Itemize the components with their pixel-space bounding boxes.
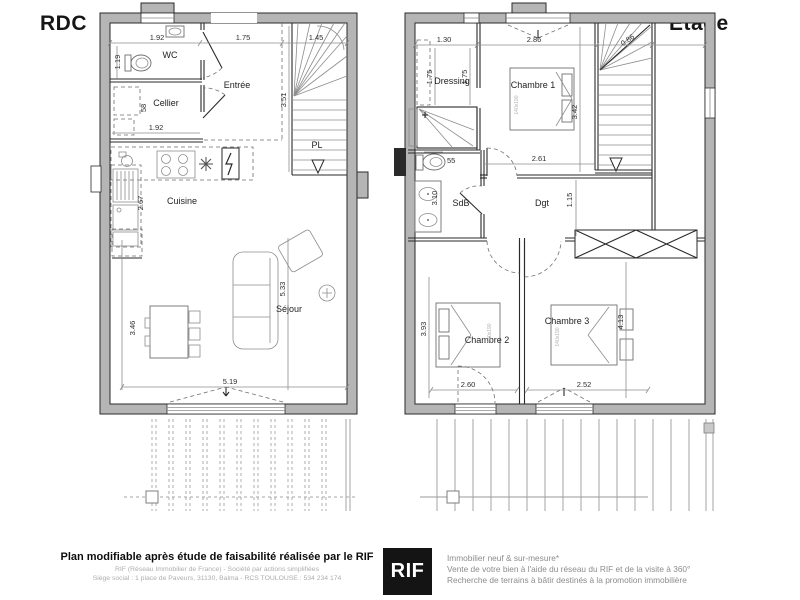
armchair	[277, 229, 323, 273]
dim-cellier-side: 58	[139, 104, 148, 112]
etage-terrace-rafters	[420, 419, 714, 511]
dim-ch3-side: 4.13	[616, 315, 625, 330]
room-label-wc: WC	[163, 50, 178, 60]
front-door-opening	[211, 13, 257, 23]
dim-dgt-width: 2.61	[532, 154, 547, 163]
dim-ch2-bottom: 2.60	[461, 380, 476, 389]
dim-cellier-width: 1.92	[149, 123, 164, 132]
dim-sdb-side: 3.10	[430, 191, 439, 206]
rif-logo: RIF	[383, 548, 432, 595]
dim-dressing1: 1.75	[425, 70, 434, 85]
room-label-sdb: SdB	[452, 198, 469, 208]
chimney-block	[141, 3, 174, 13]
rdc-floor-plan: 1.92 1.75 1.45 1.19 1.92 58 3.51 2.67 3.…	[91, 3, 368, 511]
room-label-chambre1: Chambre 1	[511, 80, 556, 90]
dining-table	[150, 306, 188, 358]
stair-direction-arrow	[610, 158, 622, 171]
room-label-chambre3: Chambre 3	[545, 316, 590, 326]
dim-kitchen-side: 2.67	[136, 196, 145, 211]
service-line-1: Immobilier neuf & sur-mesure*	[447, 553, 757, 564]
room-label-entree: Entrée	[224, 80, 251, 90]
living-room-furniture	[112, 229, 335, 358]
etage-floor-plan: 1.30 2.86 0.86 1.75 1.75 3.42 55 3.10 2.…	[394, 3, 715, 511]
dim-ch2-side: 3.93	[419, 322, 428, 337]
room-label-dressing: Dressing	[434, 76, 470, 86]
rdc-terrace-decking	[124, 419, 358, 511]
bed2-size-label: 140x190	[487, 323, 493, 342]
floor-plan-page: RDC Etage	[0, 0, 800, 600]
bay-window	[167, 404, 285, 414]
dim-toilet-width: 55	[447, 156, 455, 165]
room-label-dgt: Dgt	[535, 198, 550, 208]
dim-etage-top1: 1.30	[437, 35, 452, 44]
room-label-sejour: Séjour	[276, 304, 302, 314]
company-line1: RIF (Réseau Immobilier de France) - Soci…	[60, 566, 374, 575]
footer-disclaimer-block: Plan modifiable après étude de faisabili…	[60, 551, 374, 583]
rdc-staircase	[292, 23, 347, 175]
ch2-window	[455, 404, 496, 414]
cellier-storage	[114, 87, 140, 115]
service-line-3: Recherche de terrains à bâtir destinés à…	[447, 575, 757, 586]
service-line-2: Vente de votre bien à l'aide du réseau d…	[447, 564, 757, 575]
oven	[113, 205, 138, 230]
etage-staircase	[595, 23, 655, 232]
sofa	[233, 252, 278, 349]
chimney-block	[512, 3, 546, 13]
dim-rdc-top3: 1.45	[309, 33, 324, 42]
dim-stair-side: 3.51	[279, 93, 288, 108]
bed3-size-label: 140x190	[555, 327, 561, 346]
room-label-cuisine: Cuisine	[167, 196, 197, 206]
room-label-pl: PL	[311, 140, 322, 150]
dim-sejour-left: 3.46	[128, 321, 137, 336]
dim-etage-top2: 2.86	[527, 35, 542, 44]
footer-services-block: Immobilier neuf & sur-mesure* Vente de v…	[447, 553, 757, 585]
dim-wc-side: 1.19	[113, 55, 122, 70]
cellier-door-leaf	[203, 95, 225, 118]
ch3-window	[536, 404, 593, 414]
wc-door-leaf	[203, 32, 222, 68]
dim-rdc-top2: 1.75	[236, 33, 251, 42]
dim-ch1-side: 3.42	[570, 105, 579, 120]
dim-ch3-bottom: 2.52	[577, 380, 592, 389]
bed1-size-label: 140x190	[514, 95, 520, 114]
rif-logo-text: RIF	[391, 560, 425, 583]
floor-plans-drawing: 1.92 1.75 1.45 1.19 1.92 58 3.51 2.67 3.…	[0, 0, 800, 545]
linen-closet	[575, 230, 697, 258]
double-vanity	[415, 181, 441, 232]
bedroom3-bed	[551, 305, 633, 365]
company-line2: Siège social : 1 place de Paveurs, 31130…	[60, 575, 374, 584]
dim-dgt-side: 1.15	[565, 193, 574, 208]
flue-block	[394, 148, 406, 176]
toilet-tank	[125, 55, 131, 71]
shower	[409, 107, 477, 148]
extractor-symbol	[199, 157, 213, 171]
dim-sejour-right: 5.33	[278, 282, 287, 297]
room-label-cellier: Cellier	[153, 98, 179, 108]
dim-sejour-bottom: 5.19	[223, 377, 238, 386]
stair-direction-arrow	[312, 160, 324, 173]
disclaimer-title: Plan modifiable après étude de faisabili…	[60, 551, 374, 563]
toilet-tank	[416, 155, 423, 170]
dim-rdc-top1: 1.92	[150, 33, 165, 42]
